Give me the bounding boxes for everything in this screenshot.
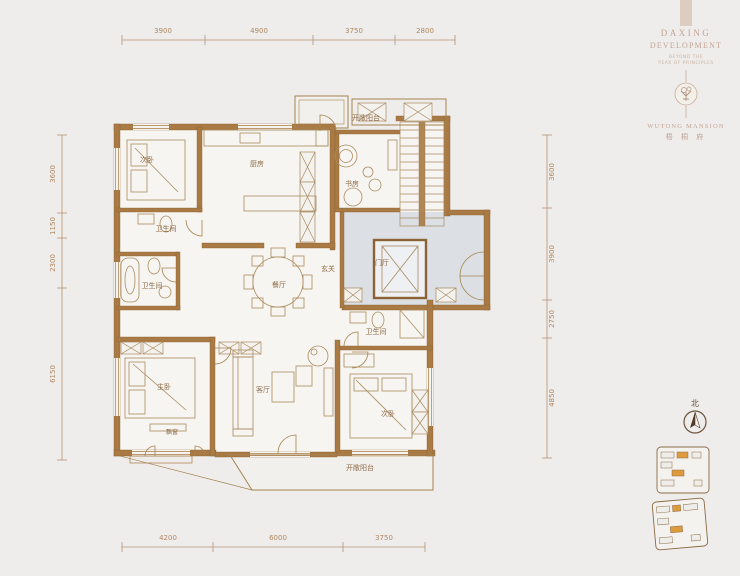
room-label-balcony-bottom: 开敞阳台 [346, 463, 374, 472]
dimension-chain-left: 3600 1150 2300 6150 [49, 135, 67, 460]
highlighted-unit [677, 452, 688, 458]
dim-left-4: 6150 [49, 365, 57, 383]
dim-top-4: 2800 [416, 27, 434, 35]
site-key-plan-1[interactable] [657, 447, 709, 493]
brand-tagline-line2: PEAK OF PRINCIPLES [658, 60, 714, 66]
dim-top-2: 4900 [250, 27, 268, 35]
dim-left-2: 1150 [49, 217, 57, 235]
dim-bottom-2: 6000 [269, 534, 287, 542]
dimension-chain-top: 3900 4900 3750 2800 [122, 27, 455, 45]
brand-top-bar [680, 0, 692, 26]
dim-left-3: 2300 [49, 254, 57, 272]
room-label-living: 客厅 [256, 385, 270, 394]
room-label-bath-bottom: 卫生间 [366, 327, 387, 336]
dim-right-3: 2750 [548, 310, 556, 328]
north-label: 北 [691, 399, 699, 408]
dim-right-4: 4850 [548, 389, 556, 407]
brand-emblem-icon [675, 83, 697, 105]
room-label-bedroom2: 次卧 [140, 155, 154, 164]
brand-column: DAXING DEVELOPMENT BEYOND THE PEAK OF PR… [647, 0, 725, 141]
dimension-chain-right: 3600 3900 2750 4850 [542, 135, 556, 458]
site-key-plan-2[interactable] [652, 498, 708, 550]
room-label-balcony-top: 开敞阳台 [352, 113, 380, 122]
dim-top-1: 3900 [154, 27, 172, 35]
developer-name-line1: DAXING [661, 28, 712, 38]
compass-needle-light [695, 412, 700, 428]
room-label-bath-left: 卫生间 [142, 281, 163, 290]
compass-needle-dark [690, 412, 695, 428]
room-label-bedroom3: 次卧 [381, 409, 395, 418]
room-label-bay-window: 飘窗 [166, 428, 178, 436]
dim-bottom-1: 4200 [159, 534, 177, 542]
room-label-study: 书房 [345, 179, 359, 188]
dim-bottom-3: 3750 [375, 534, 393, 542]
dim-left-1: 3600 [49, 165, 57, 183]
dimension-chain-bottom: 4200 6000 3750 [122, 534, 425, 552]
room-label-kitchen: 厨房 [250, 159, 264, 168]
project-name-cn: 梧 桐 府 [666, 132, 706, 141]
dim-right-2: 3900 [548, 245, 556, 263]
room-label-foyer: 门厅 [375, 258, 389, 267]
developer-name-line2: DEVELOPMENT [650, 41, 722, 50]
room-label-master: 主卧 [157, 382, 171, 391]
elevator [374, 240, 426, 298]
dim-right-1: 3600 [548, 163, 556, 181]
project-name-en: WUTONG MANSION [647, 123, 725, 130]
dim-top-3: 3750 [345, 27, 363, 35]
room-label-dining: 餐厅 [272, 280, 286, 289]
room-label-hallway: 玄关 [321, 264, 335, 273]
brand-tagline-line1: BEYOND THE [669, 54, 703, 60]
compass: 北 [684, 399, 706, 433]
floor-plan-canvas: 3900 4900 3750 2800 4200 6000 3750 3600 … [0, 0, 740, 571]
room-label-bath-top: 卫生间 [156, 224, 177, 233]
